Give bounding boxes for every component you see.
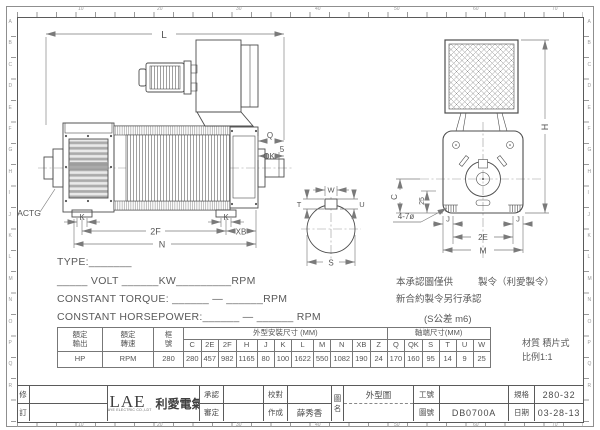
ruler-number-bottom: 30	[236, 423, 242, 428]
dim-label-K-right: K	[223, 213, 229, 222]
blower-housing	[196, 40, 241, 112]
note-scale: 比例1:1	[522, 350, 553, 363]
note-material: 材質 積片式	[522, 336, 570, 349]
ruler-letter-left: R	[9, 384, 13, 389]
ruler-letter-left: A	[9, 20, 12, 25]
ruler-number-top: 50	[394, 7, 400, 12]
drive-end-housing	[230, 127, 258, 208]
check-label-col: 校對 作成	[263, 386, 287, 421]
approve-label: 承認	[200, 386, 223, 403]
dim-val-S: 95	[422, 352, 439, 368]
ruler-letter-left: J	[9, 213, 12, 218]
dim-col-XB: XB	[353, 340, 371, 352]
ruler-letter-left: E	[9, 106, 12, 111]
approve-label-col: 承認 審定	[199, 386, 223, 421]
rated-speed-header: 額定轉速	[103, 328, 154, 352]
dim-col-N: N	[331, 340, 353, 352]
dim-val-Z: 24	[370, 352, 387, 368]
drawing-name: 外型圖	[344, 386, 413, 403]
dwg-no-value: DB0700A	[440, 403, 508, 421]
dim-col-M: M	[313, 340, 331, 352]
rated-output-header: 額定輸出	[58, 328, 103, 352]
ruler-letter-left: G	[9, 148, 13, 153]
rated-output-value: HP	[58, 352, 103, 368]
note-approval-2: 新合約製令另行承認	[396, 291, 482, 305]
ruler-letter-left: K	[9, 234, 12, 239]
ruler-number-top: 10	[78, 7, 84, 12]
dim-col-L: L	[292, 340, 314, 352]
ruler-number-bottom: 50	[394, 423, 400, 428]
ruler-letter-right: N	[588, 298, 592, 303]
ruler-number-top: 70	[552, 7, 558, 12]
ruler-letter-right: R	[588, 384, 592, 389]
ruler-number-bottom: 40	[315, 423, 321, 428]
motor-side-view	[44, 40, 284, 217]
dim-col-W: W	[473, 340, 490, 352]
dim-val-U: 9	[456, 352, 473, 368]
dim-label-2E: 2E	[478, 233, 488, 242]
revision-label-bottom: 訂	[17, 403, 29, 421]
ruler-letter-left: M	[9, 277, 13, 282]
motor-front-view	[396, 40, 523, 213]
ruler-letter-right: C	[588, 63, 592, 68]
dim-val-H: 1165	[236, 352, 257, 368]
frame-header: 框號	[154, 328, 184, 352]
dim-label-J-right: J	[516, 215, 520, 224]
note-s-tolerance: (S公差 m6)	[424, 311, 472, 325]
ruler-letter-left: D	[9, 84, 13, 89]
spec-value: 280-32	[535, 386, 583, 403]
check-label: 校對	[264, 386, 287, 403]
ruler-letter-right: A	[588, 20, 591, 25]
dwg-no-label: 圖號	[414, 403, 439, 421]
ruler-number-top: 40	[315, 7, 321, 12]
dim-col-S: S	[422, 340, 439, 352]
title-block: 修 訂 LAELI AYE ELECTRIC CO.,LDT 利愛電氣 承認 審…	[17, 385, 583, 421]
revision-entry-2	[30, 403, 107, 421]
ruler-letter-right: G	[588, 148, 592, 153]
shaft-dims-group-header: 軸端尺寸(MM)	[387, 328, 490, 340]
frame-value: 280	[154, 352, 184, 368]
rated-speed-value: RPM	[103, 352, 154, 368]
dim-val-2E: 457	[201, 352, 219, 368]
type-line: TYPE:_______	[57, 256, 132, 268]
dim-label-H: H	[540, 124, 550, 131]
ruler-letter-left: H	[9, 170, 13, 175]
work-no-label-col: 工號 圖號	[413, 386, 439, 421]
drawing-name-label: 圖 名	[332, 386, 343, 421]
drawn-by-name: 薛秀香	[288, 403, 331, 421]
ruler-letter-right: L	[588, 255, 591, 260]
ruler-letter-left: P	[9, 341, 12, 346]
ruler-letter-left: B	[9, 41, 12, 46]
dim-label-25: 25	[419, 197, 426, 205]
ruler-letter-left: Q	[9, 362, 13, 367]
ruler-letter-right: H	[588, 170, 592, 175]
dim-label-M: M	[479, 246, 486, 256]
dim-val-XB: 190	[353, 352, 371, 368]
check-signature	[288, 386, 331, 403]
sheet: L Q OK 5 K K 2F XB N ACTG W T U S 4-7ø H…	[0, 0, 600, 430]
logo-subtitle: LI AYE ELECTRIC CO.,LDT	[108, 409, 152, 412]
dim-val-K: 100	[274, 352, 292, 368]
dim-val-2F: 982	[219, 352, 237, 368]
spec-label-col: 規格 日期	[508, 386, 534, 421]
ruler-letter-right: P	[588, 341, 591, 346]
dim-label-T: T	[297, 200, 302, 209]
date-value: 03-28-13	[535, 403, 583, 421]
dim-col-QK: QK	[405, 340, 423, 352]
dim-label-U: U	[359, 200, 364, 209]
ruler-letter-right: J	[588, 213, 591, 218]
note-approval-1: 本承認圖僅供	[396, 274, 453, 288]
ruler-number-bottom: 10	[78, 423, 84, 428]
ruler-letter-left: I	[9, 191, 10, 196]
check-sign-col: 薛秀香	[287, 386, 331, 421]
dim-val-L: 1622	[292, 352, 314, 368]
ruler-letter-right: B	[588, 41, 591, 46]
drawn-label: 作成	[264, 403, 287, 421]
constant-horsepower-line: CONSTANT HORSEPOWER:______ — ______ RPM	[57, 311, 321, 323]
volt-kw-rpm-line: _____ VOLT ______KW_________RPM	[57, 275, 256, 287]
dim-label-W: W	[327, 186, 335, 195]
dim-label-C: C	[390, 194, 399, 200]
ruler-letter-right: I	[588, 191, 589, 196]
spec-label: 規格	[509, 386, 534, 403]
revision-label-col: 修 訂	[17, 386, 29, 421]
dim-col-H: H	[236, 340, 257, 352]
dim-col-T: T	[439, 340, 456, 352]
lae-logo-text: LAELI AYE ELECTRIC CO.,LDT	[108, 395, 152, 411]
ruler-letter-right: D	[588, 84, 592, 89]
spec-value-col: 280-32 03-28-13	[534, 386, 583, 421]
approve-signature	[224, 386, 263, 403]
dim-val-J: 80	[257, 352, 274, 368]
drawing-name-label-char1: 圖	[334, 394, 342, 403]
dim-label-XB: XB	[236, 228, 247, 237]
dim-label-J-left: J	[446, 215, 450, 224]
dim-col-2F: 2F	[219, 340, 237, 352]
ruler-letter-left: N	[9, 298, 13, 303]
ruler-number-top: 60	[473, 7, 479, 12]
dim-label-N: N	[159, 240, 166, 250]
ruler-letter-left: L	[9, 255, 12, 260]
dim-col-U: U	[456, 340, 473, 352]
dim-label-OK: OK	[263, 152, 275, 161]
dim-label-L: L	[161, 30, 167, 41]
dim-val-C: 280	[184, 352, 202, 368]
dim-col-C: C	[184, 340, 202, 352]
dim-col-2E: 2E	[201, 340, 219, 352]
dim-val-N: 1082	[331, 352, 353, 368]
dim-label-2F: 2F	[150, 227, 161, 237]
numbers-col: DB0700A	[439, 386, 508, 421]
revision-label-top: 修	[17, 386, 29, 403]
date-label: 日期	[509, 403, 534, 421]
logo-col: LAELI AYE ELECTRIC CO.,LDT 利愛電氣	[107, 386, 199, 421]
ruler-number-bottom: 20	[157, 423, 163, 428]
outline-dims-group-header: 外型安裝尺寸 (MM)	[184, 328, 388, 340]
dim-val-Q: 170	[387, 352, 405, 368]
ruler-number-bottom: 70	[552, 423, 558, 428]
ruler-letter-right: E	[588, 106, 591, 111]
label-ACTG: ACTG	[17, 208, 41, 218]
approve-sign-col	[223, 386, 263, 421]
drawing-name-extra	[344, 403, 413, 421]
company-logo: LAELI AYE ELECTRIC CO.,LDT 利愛電氣	[108, 386, 199, 421]
label-mounting-holes: 4-7ø	[398, 212, 415, 221]
dim-col-Z: Z	[370, 340, 387, 352]
dim-val-QK: 160	[405, 352, 423, 368]
review-label: 審定	[200, 403, 223, 421]
dimension-table: 額定輸出 額定轉速 框號 外型安裝尺寸 (MM) 軸端尺寸(MM) C2E2FH…	[57, 327, 491, 368]
ruler-number-top: 20	[157, 7, 163, 12]
dim-label-5: 5	[280, 145, 285, 154]
dim-col-K: K	[274, 340, 292, 352]
work-no-value	[440, 386, 508, 403]
dim-value-row: HP RPM 280 28045798211658010016225501082…	[58, 352, 491, 368]
dim-label-Q: Q	[267, 131, 273, 140]
ruler-letter-left: C	[9, 63, 13, 68]
review-signature	[224, 403, 263, 421]
dim-col-J: J	[257, 340, 274, 352]
dim-col-Q: Q	[387, 340, 405, 352]
dim-val-W: 25	[473, 352, 490, 368]
keyway	[325, 199, 337, 209]
dim-label-S: S	[328, 259, 333, 268]
ruler-number-top: 30	[236, 7, 242, 12]
ruler-letter-right: K	[588, 234, 591, 239]
dim-val-M: 550	[313, 352, 331, 368]
ruler-letter-left: F	[9, 127, 12, 132]
ruler-letter-right: F	[588, 127, 591, 132]
company-name: 利愛電氣	[156, 395, 199, 412]
dim-val-T: 14	[439, 352, 456, 368]
drawing-name-label-col: 圖 名	[331, 386, 343, 421]
ruler-letter-right: O	[588, 320, 592, 325]
ruler-letter-left: O	[9, 320, 13, 325]
cooling-fins	[126, 135, 230, 201]
drawing-name-col: 外型圖	[343, 386, 413, 421]
constant-torque-line: CONSTANT TORQUE: ______ — ______RPM	[57, 293, 287, 305]
blower-transition	[197, 112, 253, 126]
ruler-letter-right: Q	[588, 362, 592, 367]
dim-label-K-left: K	[79, 213, 85, 222]
note-manufacture-order: 製令（利愛製令）	[478, 274, 554, 288]
revision-entries-col	[29, 386, 107, 421]
ruler-letter-right: M	[588, 277, 592, 282]
work-no-label: 工號	[414, 386, 439, 403]
drawing-name-label-char2: 名	[334, 404, 342, 413]
ruler-number-bottom: 60	[473, 423, 479, 428]
revision-entry-1	[30, 386, 107, 403]
